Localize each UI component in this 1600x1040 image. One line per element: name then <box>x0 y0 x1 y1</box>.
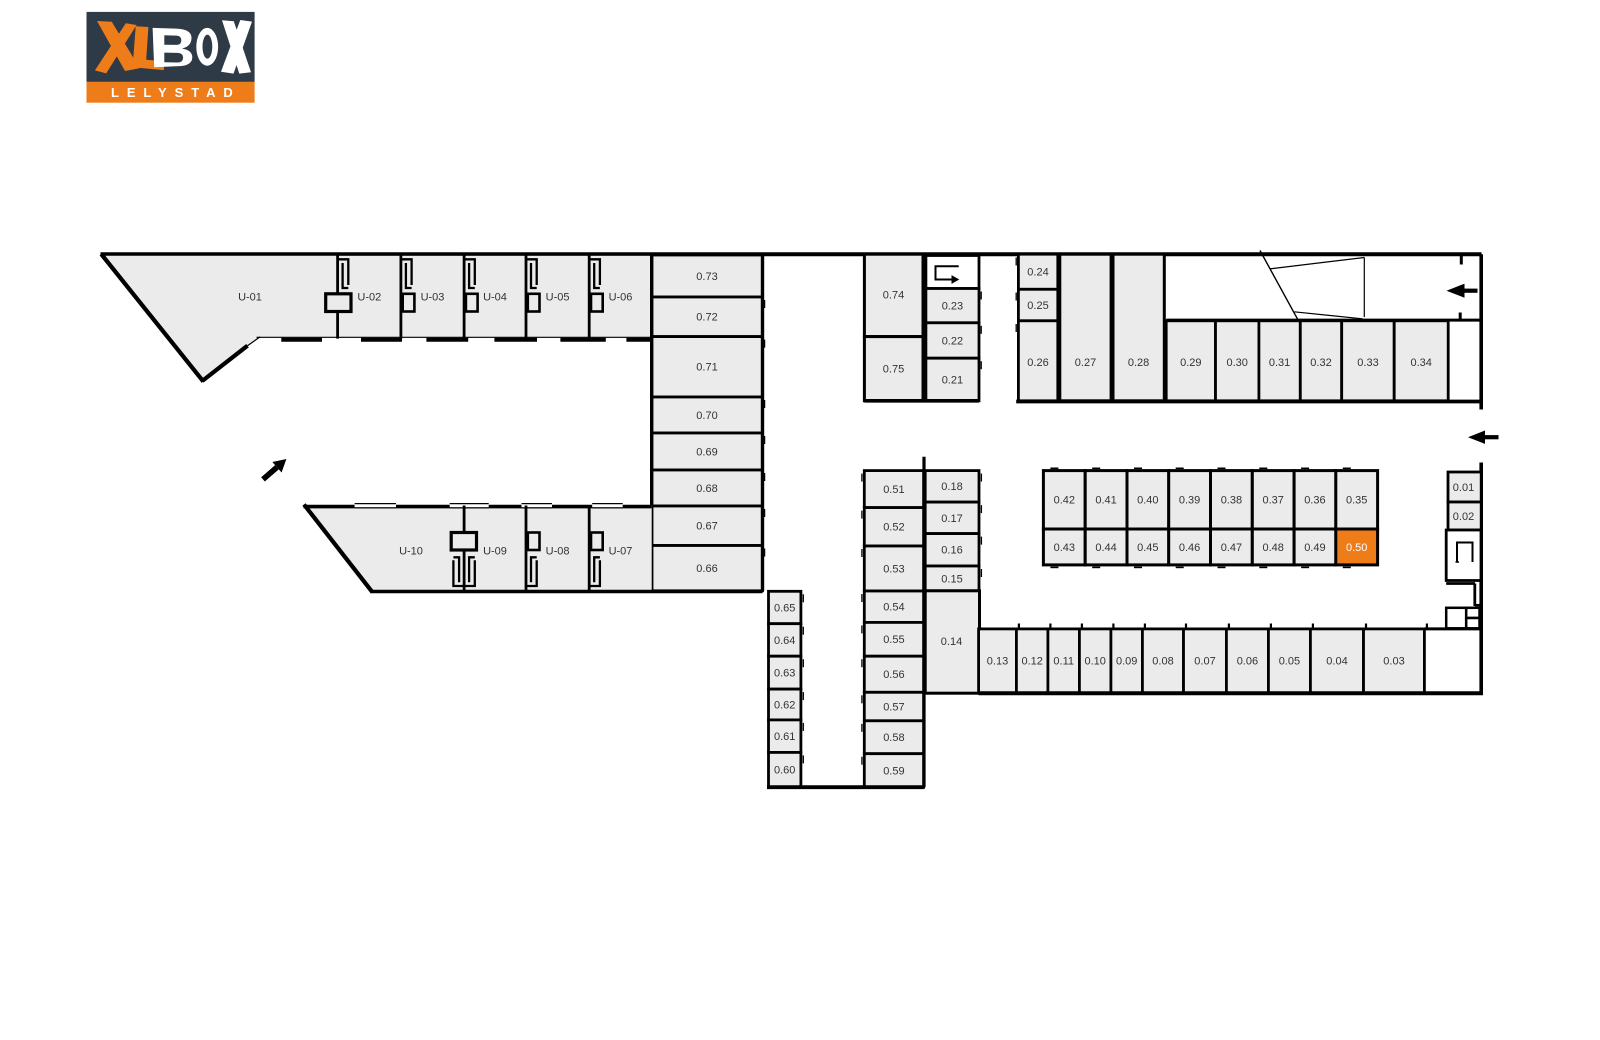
svg-text:0.18: 0.18 <box>941 481 962 493</box>
svg-text:0.34: 0.34 <box>1410 357 1431 369</box>
svg-text:0.29: 0.29 <box>1180 357 1201 369</box>
svg-text:U-05: U-05 <box>546 291 570 303</box>
svg-text:U-09: U-09 <box>483 545 507 557</box>
svg-text:0.69: 0.69 <box>696 446 717 458</box>
svg-text:0.64: 0.64 <box>774 635 795 647</box>
svg-text:U-06: U-06 <box>609 291 633 303</box>
svg-text:0.11: 0.11 <box>1053 655 1074 667</box>
svg-text:0.74: 0.74 <box>883 289 904 301</box>
svg-text:U-03: U-03 <box>421 291 445 303</box>
svg-text:0.15: 0.15 <box>941 573 962 585</box>
svg-text:0.70: 0.70 <box>696 410 717 422</box>
svg-text:0.09: 0.09 <box>1116 655 1137 667</box>
svg-text:0.03: 0.03 <box>1383 655 1404 667</box>
svg-text:U-07: U-07 <box>609 545 633 557</box>
svg-text:U-04: U-04 <box>483 291 507 303</box>
svg-text:0.05: 0.05 <box>1279 655 1300 667</box>
svg-text:0.59: 0.59 <box>883 765 904 777</box>
svg-text:0.22: 0.22 <box>942 335 963 347</box>
svg-text:0.02: 0.02 <box>1453 511 1474 523</box>
svg-text:0.46: 0.46 <box>1179 542 1200 554</box>
svg-text:0.75: 0.75 <box>883 363 904 375</box>
svg-text:0.71: 0.71 <box>696 362 717 374</box>
svg-text:0.25: 0.25 <box>1027 300 1048 312</box>
svg-text:0.62: 0.62 <box>774 699 795 711</box>
svg-text:0.01: 0.01 <box>1453 482 1474 494</box>
svg-text:0.53: 0.53 <box>883 563 904 575</box>
svg-text:0.23: 0.23 <box>942 300 963 312</box>
svg-text:U-02: U-02 <box>357 291 381 303</box>
svg-text:LELYSTAD: LELYSTAD <box>111 85 241 100</box>
svg-text:0.56: 0.56 <box>883 669 904 681</box>
svg-text:0.28: 0.28 <box>1128 357 1149 369</box>
svg-text:0.39: 0.39 <box>1179 494 1200 506</box>
svg-text:0.65: 0.65 <box>774 602 795 614</box>
svg-text:0.37: 0.37 <box>1262 494 1283 506</box>
svg-text:0.40: 0.40 <box>1137 494 1158 506</box>
svg-text:0.12: 0.12 <box>1021 655 1042 667</box>
svg-text:0.54: 0.54 <box>883 602 904 614</box>
svg-text:U-01: U-01 <box>238 291 262 303</box>
svg-text:0.33: 0.33 <box>1357 357 1378 369</box>
svg-text:0.61: 0.61 <box>774 731 795 743</box>
svg-text:0.04: 0.04 <box>1326 655 1347 667</box>
svg-text:0.31: 0.31 <box>1269 357 1290 369</box>
svg-text:0.38: 0.38 <box>1221 494 1242 506</box>
svg-text:0.32: 0.32 <box>1310 357 1331 369</box>
svg-text:0.52: 0.52 <box>883 522 904 534</box>
svg-text:0.58: 0.58 <box>883 732 904 744</box>
svg-text:0.73: 0.73 <box>696 271 717 283</box>
svg-text:0.27: 0.27 <box>1075 357 1096 369</box>
svg-text:0.43: 0.43 <box>1054 542 1075 554</box>
svg-text:0.16: 0.16 <box>941 545 962 557</box>
svg-text:0.50: 0.50 <box>1346 542 1367 554</box>
svg-text:0.68: 0.68 <box>696 483 717 495</box>
svg-text:0.67: 0.67 <box>696 521 717 533</box>
svg-text:0.08: 0.08 <box>1152 655 1173 667</box>
svg-text:0.47: 0.47 <box>1221 542 1242 554</box>
svg-text:0.45: 0.45 <box>1137 542 1158 554</box>
svg-text:0.41: 0.41 <box>1095 494 1116 506</box>
svg-text:0.63: 0.63 <box>774 668 795 680</box>
svg-text:0.24: 0.24 <box>1027 266 1048 278</box>
svg-text:0.42: 0.42 <box>1054 494 1075 506</box>
svg-text:0.14: 0.14 <box>941 636 962 648</box>
svg-text:0.30: 0.30 <box>1226 357 1247 369</box>
svg-text:0.10: 0.10 <box>1084 655 1105 667</box>
svg-text:0.17: 0.17 <box>941 513 962 525</box>
svg-text:0.21: 0.21 <box>942 374 963 386</box>
svg-text:0.07: 0.07 <box>1194 655 1215 667</box>
svg-text:0.36: 0.36 <box>1304 494 1325 506</box>
svg-text:0.13: 0.13 <box>987 655 1008 667</box>
svg-text:0.57: 0.57 <box>883 701 904 713</box>
svg-text:0.44: 0.44 <box>1095 542 1116 554</box>
svg-text:0.55: 0.55 <box>883 634 904 646</box>
svg-text:0.72: 0.72 <box>696 312 717 324</box>
svg-text:0.51: 0.51 <box>883 484 904 496</box>
svg-text:0.60: 0.60 <box>774 765 795 777</box>
svg-text:0.26: 0.26 <box>1027 357 1048 369</box>
svg-text:U-08: U-08 <box>546 545 570 557</box>
svg-text:0.06: 0.06 <box>1237 655 1258 667</box>
svg-text:0.49: 0.49 <box>1304 542 1325 554</box>
svg-text:0.35: 0.35 <box>1346 494 1367 506</box>
svg-text:U-10: U-10 <box>399 545 423 557</box>
svg-text:0.48: 0.48 <box>1262 542 1283 554</box>
svg-text:0.66: 0.66 <box>696 563 717 575</box>
